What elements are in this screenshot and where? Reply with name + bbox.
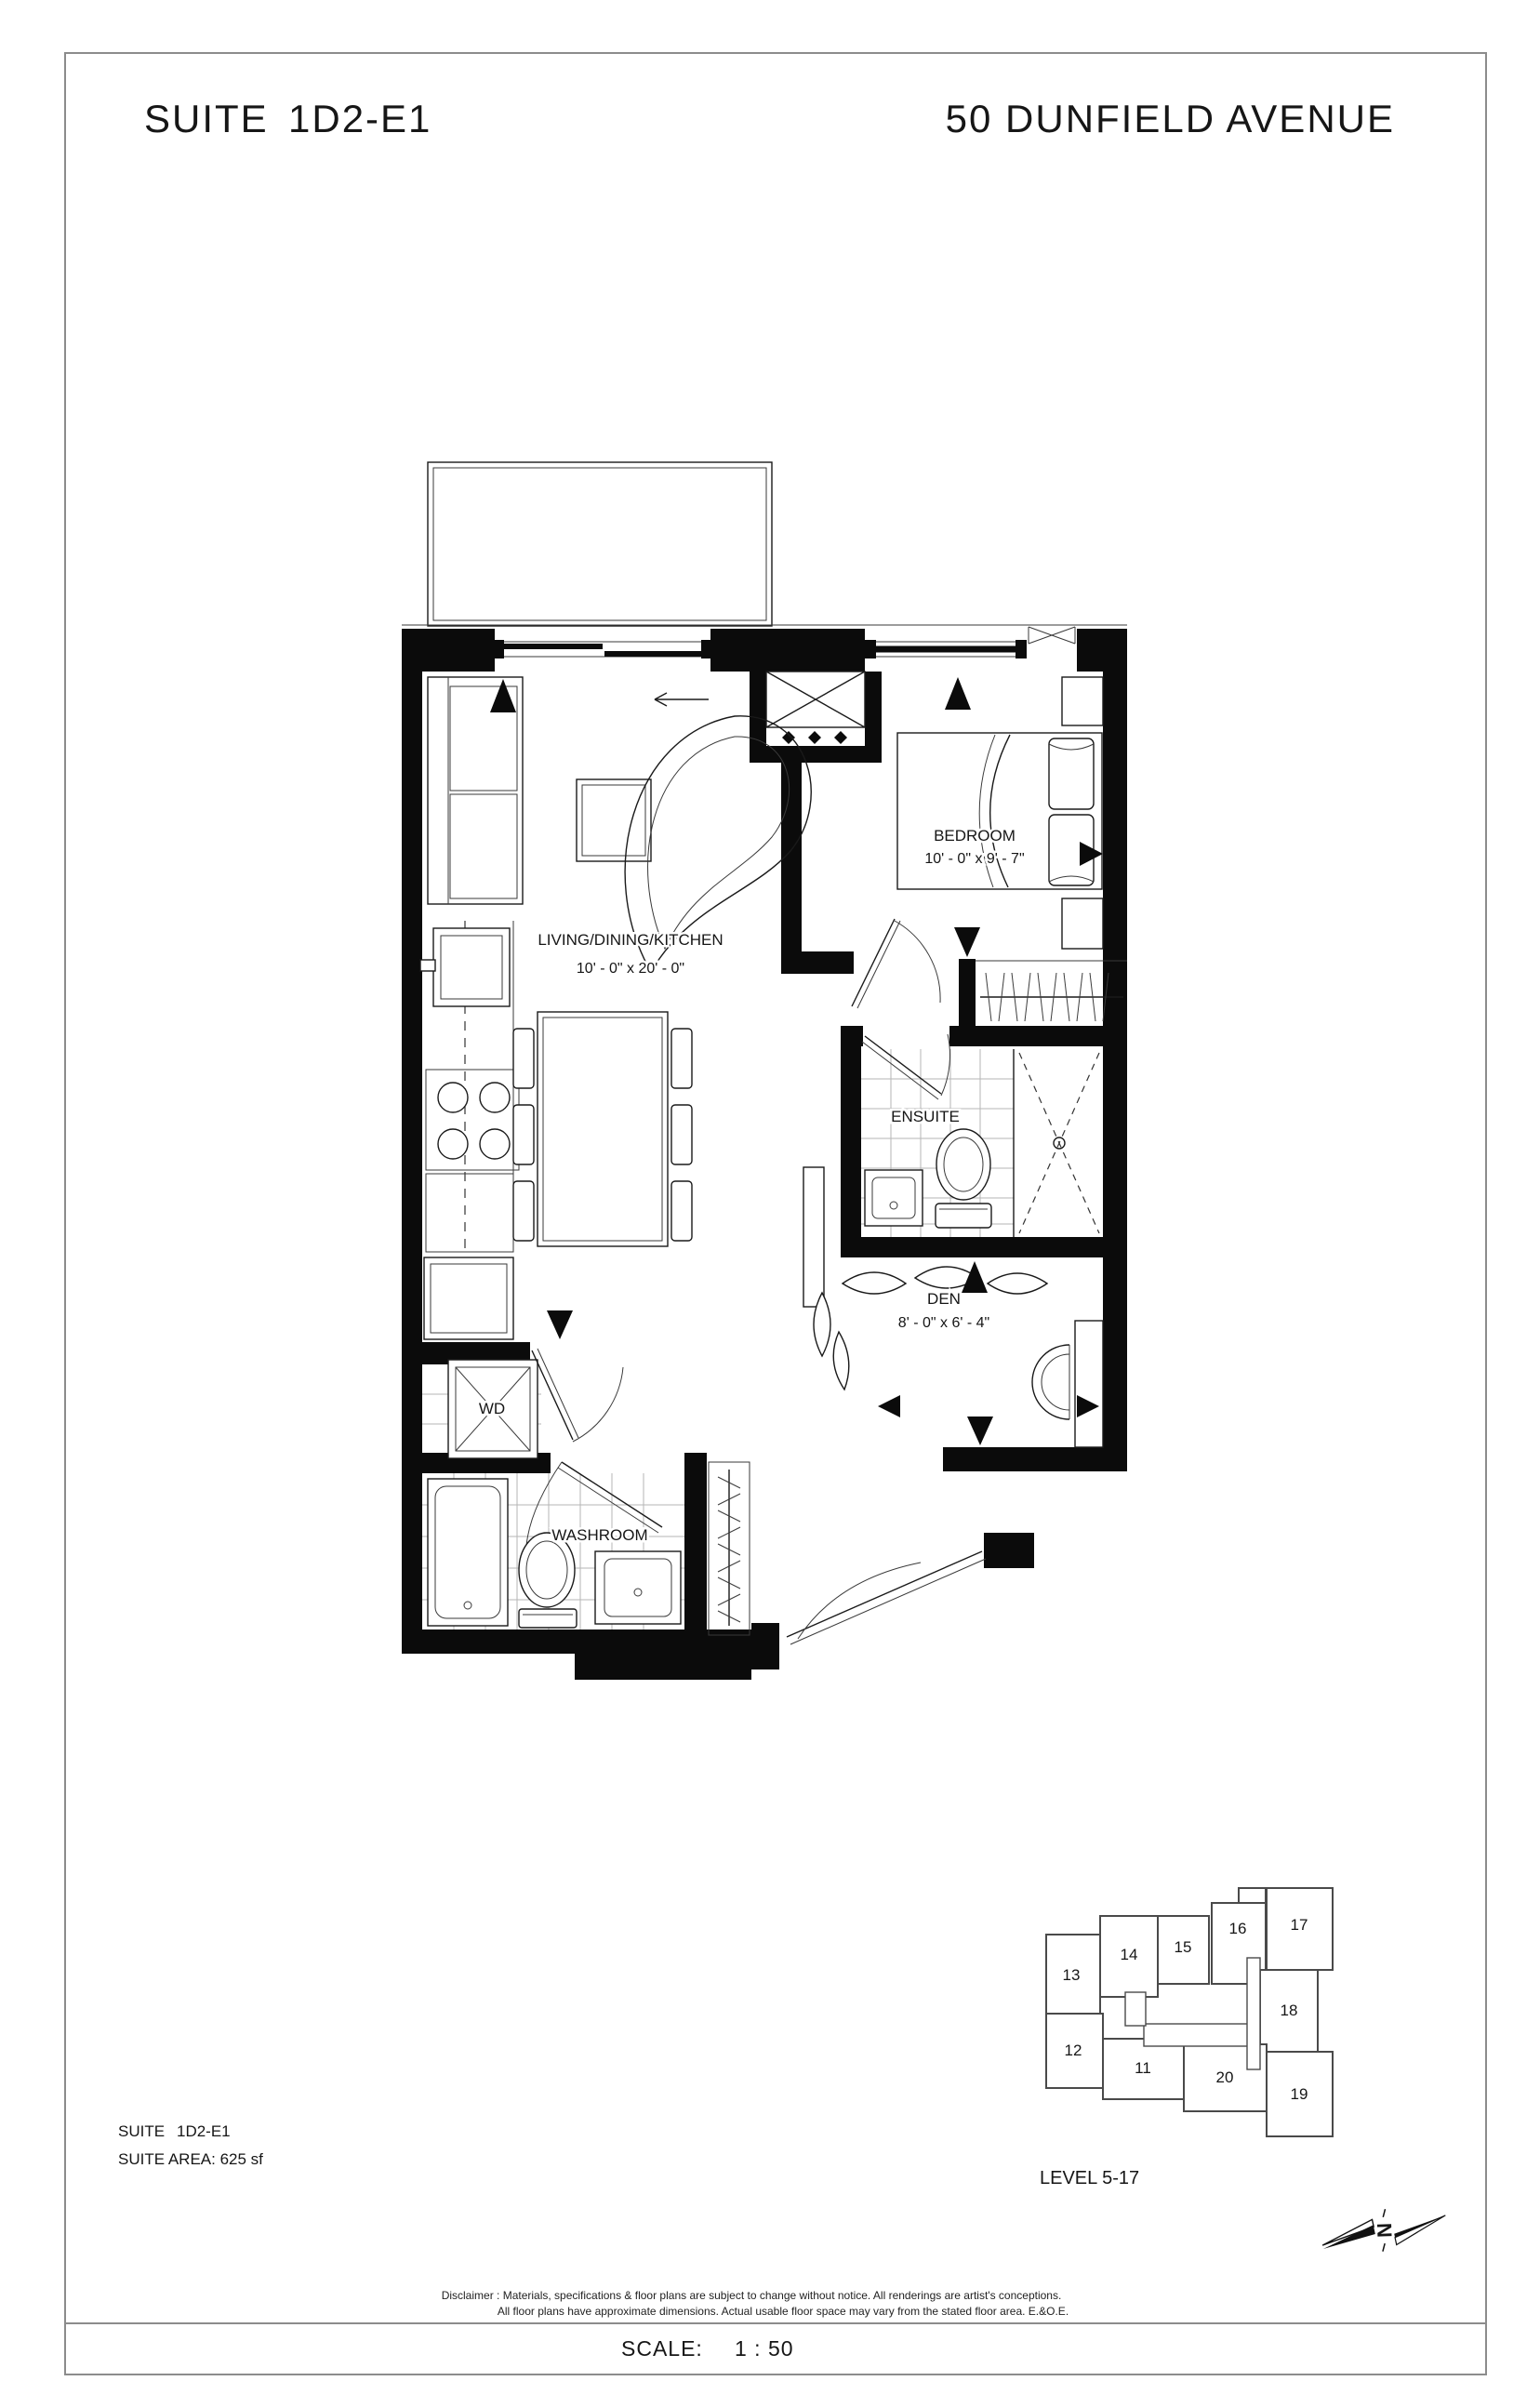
info-suite-word: SUITE [118, 2122, 165, 2140]
unit-20-number: 20 [1216, 2068, 1234, 2086]
ensuite-toilet [936, 1129, 991, 1228]
suite-title-code: 1D2-E1 [288, 97, 431, 140]
north-letter: N [1373, 2223, 1397, 2239]
bedroom-door [852, 919, 940, 1008]
disclaimer-line2: All floor plans have approximate dimensi… [498, 2305, 1069, 2318]
scale-strip: SCALE: 1 : 50 [621, 2336, 794, 2361]
kitchen [420, 921, 519, 1339]
address-title: 50 DUNFIELD AVENUE [946, 97, 1395, 140]
bedroom-window [865, 627, 1075, 658]
disclaimer: Disclaimer : Materials, specifications &… [442, 2289, 1069, 2318]
washroom-room [422, 1462, 684, 1629]
coffee-table [577, 779, 651, 861]
scale-word: SCALE: [621, 2336, 703, 2361]
unit-18-number: 18 [1281, 2002, 1298, 2019]
floor-plan: LIVING/DINING/KITCHEN 10' - 0" x 20' - 0… [402, 462, 1127, 1680]
header: SUITE 1D2-E1 50 DUNFIELD AVENUE [144, 97, 1395, 140]
unit-15-number: 15 [1175, 1938, 1192, 1956]
bedroom-label: BEDROOM [934, 827, 1016, 845]
cabinet [426, 1174, 513, 1252]
unit-13-number: 13 [1063, 1966, 1081, 1984]
washroom-label: WASHROOM [551, 1526, 647, 1544]
north-arrow-icon: N [1318, 2197, 1450, 2263]
level-label: LEVEL 5-17 [1040, 2168, 1139, 2188]
unit-12-number: 12 [1065, 2042, 1082, 2059]
fridge [424, 1257, 513, 1339]
shower [1019, 1053, 1099, 1233]
window-end-panel-icon [1029, 627, 1075, 644]
wd-label: WD [479, 1400, 505, 1417]
console [803, 1167, 824, 1307]
ensuite-room [861, 1034, 1099, 1237]
slide-arrow-icon [655, 693, 709, 706]
info-area: SUITE AREA: 625 sf [118, 2150, 263, 2168]
den-label: DEN [927, 1290, 961, 1308]
unit-16-number: 16 [1229, 1920, 1247, 1937]
unit-16-notch [1239, 1888, 1266, 1903]
wd-closet [422, 1349, 623, 1458]
desk [1075, 1321, 1103, 1447]
living-window [495, 640, 710, 658]
info-suite-code: 1D2-E1 [177, 2122, 231, 2140]
desk-chair [1032, 1345, 1069, 1419]
floorplan-sheet: SUITE 1D2-E1 50 DUNFIELD AVENUE [0, 0, 1540, 2381]
suite-info: SUITE 1D2-E1 SUITE AREA: 625 sf [118, 2122, 263, 2168]
sheet-canvas: SUITE 1D2-E1 50 DUNFIELD AVENUE [0, 0, 1540, 2381]
ensuite-label: ENSUITE [891, 1108, 960, 1125]
balcony [428, 462, 772, 626]
ensuite-sink [865, 1170, 923, 1226]
dining-table [513, 1012, 692, 1246]
dresser [1062, 898, 1103, 949]
den-dims: 8' - 0" x 6' - 4" [898, 1315, 989, 1331]
living-label: LIVING/DINING/KITCHEN [538, 931, 723, 949]
ensuite-door [862, 1034, 949, 1099]
disclaimer-line1: Disclaimer : Materials, specifications &… [442, 2289, 1062, 2302]
entry-door [787, 1551, 986, 1644]
living-dims: 10' - 0" x 20' - 0" [577, 961, 684, 977]
entry-closet-x [766, 672, 865, 744]
washroom-toilet [519, 1533, 577, 1628]
bedroom-dims: 10' - 0" x 9' - 7" [924, 851, 1024, 867]
unit-11-number: 11 [1135, 2059, 1151, 2077]
kitchen-sink [420, 928, 510, 1006]
unit-17-number: 17 [1291, 1916, 1308, 1934]
foyer-closet [709, 1462, 750, 1635]
key-plan: 13 12 14 15 16 17 18 19 20 11 LEVEL 5-17 [1040, 1888, 1333, 2188]
nightstand [1062, 677, 1103, 725]
suite-title-word: SUITE [144, 97, 269, 140]
wd-door [532, 1349, 623, 1442]
washroom-sink [595, 1551, 681, 1624]
cooktop [426, 1070, 519, 1170]
bathtub [428, 1479, 508, 1626]
scale-value: 1 : 50 [735, 2336, 794, 2361]
unit-19-number: 19 [1291, 2085, 1308, 2103]
unit-14-number: 14 [1121, 1946, 1138, 1963]
